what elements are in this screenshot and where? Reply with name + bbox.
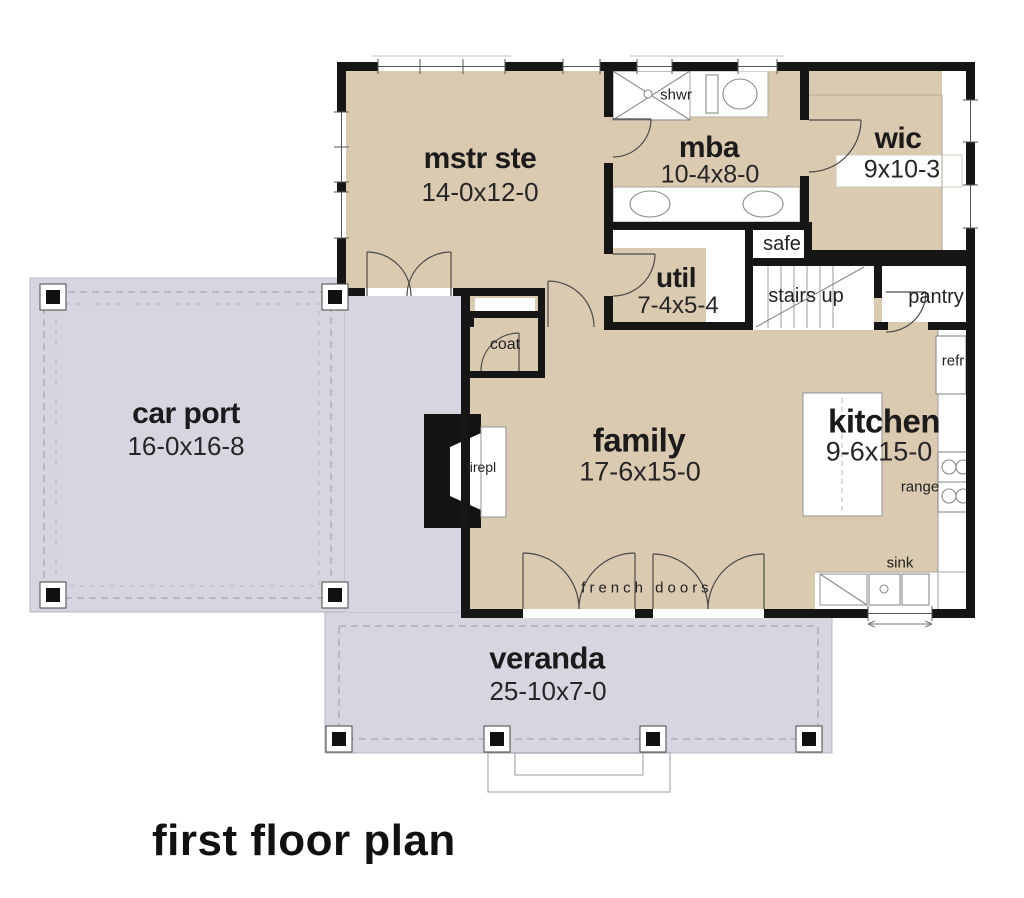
- room-dims-car-port: 16-0x16-8: [127, 433, 244, 459]
- room-dims-util: 7-4x5-4: [637, 294, 718, 318]
- label-stairs-up: stairs up: [768, 286, 844, 306]
- label-french-doors: french doors: [581, 581, 712, 596]
- label-fireplace: firepl: [466, 460, 496, 474]
- window-bottom-sink: [868, 606, 932, 627]
- label-refrigerator: refr: [942, 354, 965, 369]
- floor-plan: mstr ste 14-0x12-0 mba 10-4x8-0 wic 9x10…: [0, 0, 1024, 898]
- room-label-family: family: [593, 424, 685, 457]
- vanity-fixture: [613, 187, 800, 222]
- room-label-mba: mba: [679, 133, 739, 163]
- label-sink: sink: [887, 556, 914, 571]
- label-safe: safe: [763, 234, 801, 254]
- room-dims-mstr-ste: 14-0x12-0: [421, 179, 538, 205]
- toilet-fixture: [690, 71, 768, 117]
- label-pantry: pantry: [908, 287, 964, 307]
- label-range: range: [901, 480, 939, 495]
- veranda-steps: [488, 753, 670, 792]
- room-dims-mba: 10-4x8-0: [661, 163, 760, 188]
- room-label-kitchen: kitchen: [828, 405, 940, 438]
- room-label-wic: wic: [875, 124, 922, 154]
- room-label-veranda: veranda: [489, 643, 604, 674]
- label-shower: shwr: [660, 88, 692, 103]
- room-dims-family: 17-6x15-0: [579, 459, 701, 486]
- room-dims-veranda: 25-10x7-0: [489, 678, 606, 704]
- room-label-car-port: car port: [132, 399, 240, 429]
- room-label-util: util: [656, 264, 696, 292]
- page-title: first floor plan: [152, 816, 456, 866]
- sink-fixture: [820, 574, 929, 605]
- room-dims-kitchen: 9-6x15-0: [826, 439, 933, 466]
- room-dims-wic: 9x10-3: [864, 158, 940, 183]
- room-label-mstr-ste: mstr ste: [424, 144, 537, 174]
- label-coat: coat: [490, 337, 520, 353]
